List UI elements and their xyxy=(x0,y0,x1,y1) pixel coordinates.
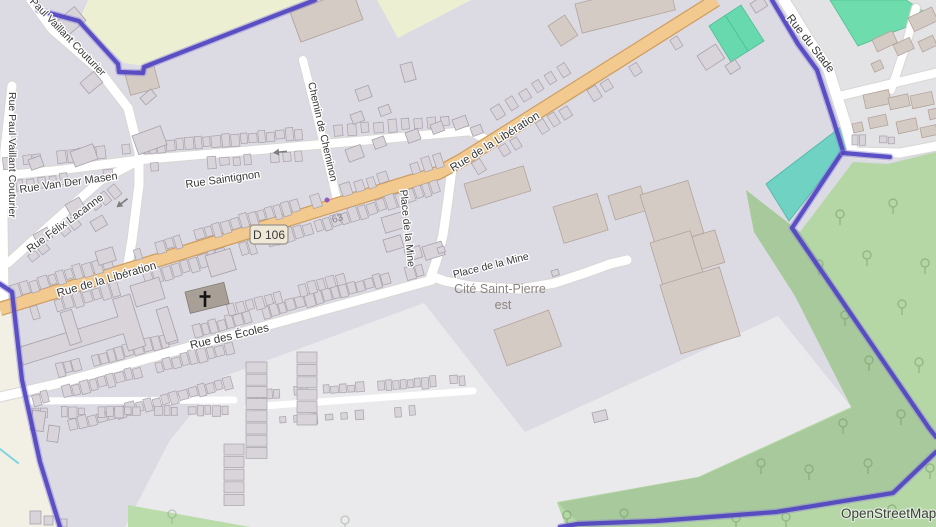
svg-text:D 106: D 106 xyxy=(253,228,285,242)
svg-text:Cité Saint-Pierre: Cité Saint-Pierre xyxy=(454,282,546,296)
svg-text:est: est xyxy=(495,298,512,312)
svg-text:Rue Paul Vaillant Couturier: Rue Paul Vaillant Couturier xyxy=(6,92,18,218)
svg-text:OpenStreetMap: OpenStreetMap xyxy=(841,506,936,521)
